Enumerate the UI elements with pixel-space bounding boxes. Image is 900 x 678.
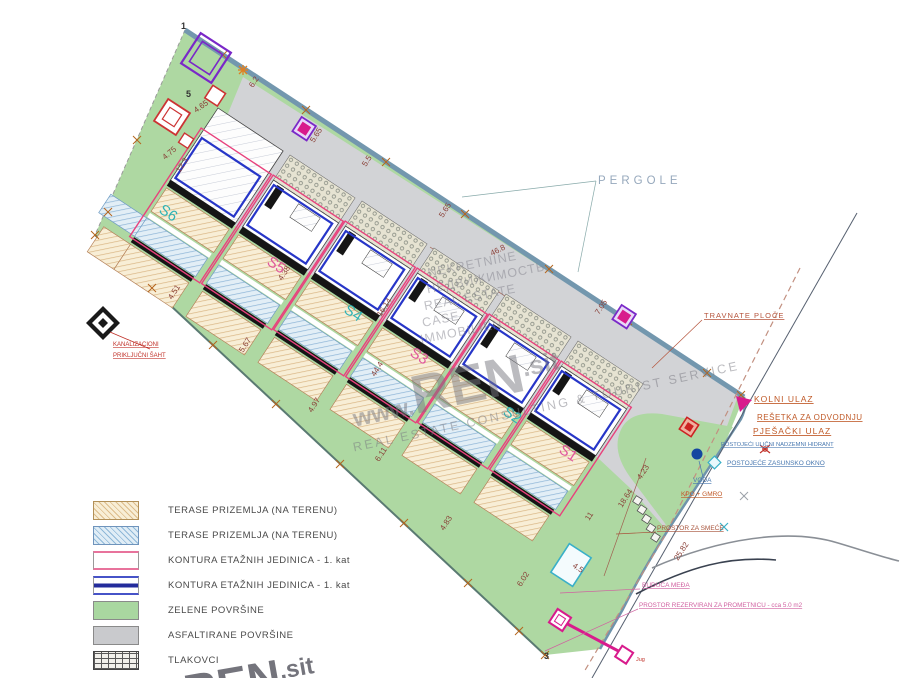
legend-item-terase-1: TERASE PRIZEMLJA (NA TERENU): [93, 501, 423, 520]
annotation-label: KANALIZACIONI: [113, 342, 159, 348]
green-swatch: [93, 601, 139, 620]
annotation-label: PERGOLE: [598, 175, 682, 187]
annotation-label: VODA: [693, 477, 712, 484]
annotation-label: BUDUĆA MEĐA: [642, 580, 690, 589]
annotation-label: PROSTOR REZERVIRAN ZA PROMETNICU - cca 5…: [639, 602, 803, 609]
legend-label: TERASE PRIZEMLJA (NA TERENU): [168, 530, 338, 541]
annotation-label: POSTOJEĆI ULIČNI NADZEMNI HIDRANT: [721, 441, 834, 448]
legend-label: ASFALTIRANE POVRŠINE: [168, 630, 293, 641]
annotation-label: TRAVNATE PLOČE: [704, 311, 784, 320]
gray-swatch: [93, 626, 139, 645]
kpo-mark-icon: [740, 492, 748, 500]
boundary-point-5: 5: [186, 89, 191, 99]
annotation-label: PROSTOR ZA SMEĆE: [657, 523, 724, 532]
legend-label: TERASE PRIZEMLJA (NA TERENU): [168, 505, 338, 516]
tan-hatch-swatch: [93, 501, 139, 520]
boundary-point-3: 3: [544, 651, 549, 661]
annotation-label: REŠETKA ZA ODVODNJU: [757, 413, 863, 422]
survey-star-icon: [238, 65, 248, 75]
legend-item-terase-2: TERASE PRIZEMLJA (NA TERENU): [93, 526, 423, 545]
dimension-label: 25.82: [672, 540, 691, 562]
legend-label: TLAKOVCI: [168, 655, 219, 666]
pink-contour-swatch: [93, 551, 139, 570]
legend-item-zelene: ZELENE POVRŠINE: [93, 601, 423, 620]
blue-contour-swatch: [93, 576, 139, 595]
annotation-label: KOLNI ULAZ: [754, 394, 814, 404]
annotation-label: POSTOJEĆE ZASUNSKO OKNO: [727, 458, 825, 467]
legend-item-asfaltirane: ASFALTIRANE POVRŠINE: [93, 626, 423, 645]
annotation-label: Jug: [636, 657, 645, 663]
legend-label: ZELENE POVRŠINE: [168, 605, 264, 616]
boundary-point-1: 1: [181, 21, 186, 31]
water-connection-icon: [692, 449, 703, 460]
legend-item-kontura-2: KONTURA ETAŽNIH JEDINICA - 1. kat: [93, 576, 423, 595]
terrain-curve-1: [652, 536, 899, 568]
blue-hatch-swatch: [93, 526, 139, 545]
annotation-label: PJEŠAČKI ULAZ: [753, 426, 831, 436]
legend: TERASE PRIZEMLJA (NA TERENU) TERASE PRIZ…: [93, 501, 423, 676]
site-plan-page: 6.24.654.7512.35.655.55.6546.87.054.3816…: [0, 0, 900, 678]
legend-item-kontura-1: KONTURA ETAŽNIH JEDINICA - 1. kat: [93, 551, 423, 570]
annotation-label: KPO + GMRO: [681, 491, 722, 498]
legend-item-tlakovci: TLAKOVCI: [93, 651, 423, 670]
legend-label: KONTURA ETAŽNIH JEDINICA - 1. kat: [168, 555, 350, 566]
pavers-swatch: [93, 651, 139, 670]
annotation-label: PRIKLJUČNI ŠAHT: [113, 352, 166, 359]
legend-label: KONTURA ETAŽNIH JEDINICA - 1. kat: [168, 580, 350, 591]
